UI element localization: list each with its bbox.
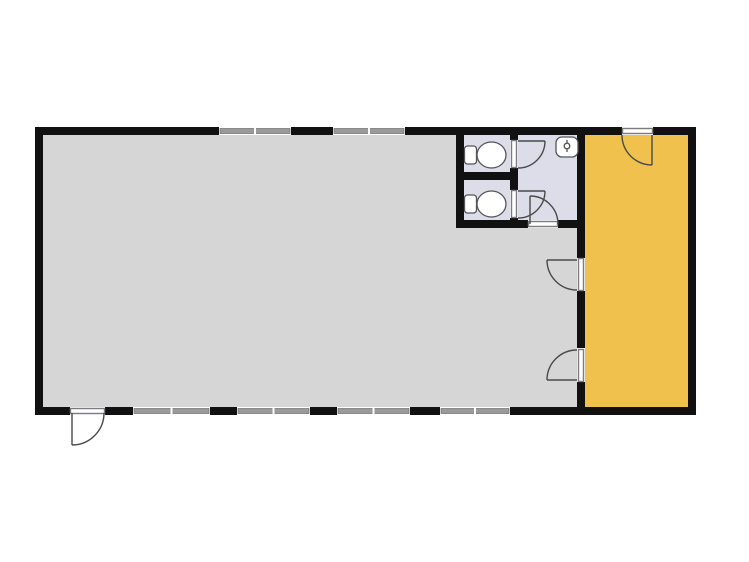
outer-wall-left	[35, 127, 43, 415]
window-bottom-2-mullion	[273, 408, 275, 414]
window-bottom-4-mullion	[474, 408, 476, 414]
entrance-door-panel	[71, 409, 105, 414]
floor-plan	[0, 0, 749, 562]
hall-lower-door-panel	[579, 350, 584, 382]
entrance-door-swing	[72, 413, 104, 445]
toilet-icon-1	[477, 142, 506, 168]
corridor-door-panel	[529, 222, 558, 227]
outer-wall-right	[688, 127, 696, 415]
window-top-1-mullion	[254, 128, 256, 134]
accent-room-floor	[581, 131, 692, 411]
accent-room-door-panel	[623, 129, 653, 134]
hall-upper-door-panel	[579, 259, 584, 291]
sink-icon-tap	[564, 143, 570, 149]
toilet-icon-1-tank	[465, 146, 477, 164]
window-bottom-3-mullion	[373, 408, 375, 414]
toilet1-door-panel	[512, 141, 517, 168]
floor-plan-canvas	[0, 0, 749, 562]
window-top-2-mullion	[368, 128, 370, 134]
toilet-icon-2	[477, 191, 506, 217]
window-bottom-1-mullion	[171, 408, 173, 414]
toilet-icon-2-tank	[465, 195, 477, 213]
washroom-bottom-wall	[456, 220, 585, 228]
washroom-partition-wall	[456, 172, 518, 180]
toilet2-door-panel	[512, 191, 517, 218]
